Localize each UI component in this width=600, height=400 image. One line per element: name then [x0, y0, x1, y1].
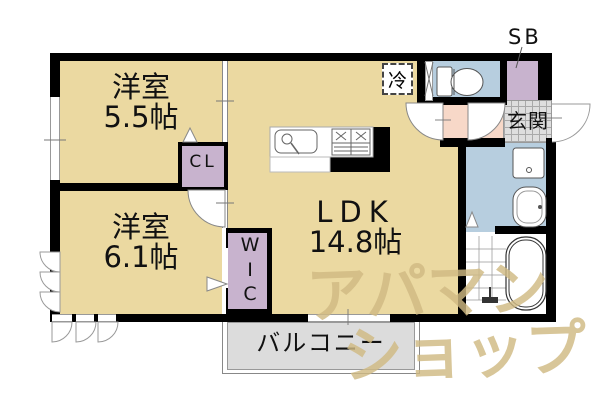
wall-right-lower: [546, 138, 556, 322]
window-bedroom-6-1-bottom-1: [52, 314, 72, 322]
wall-toilet-shoebox: [500, 61, 507, 97]
wall-top: [50, 53, 552, 61]
wall-kitchen-vertical: [373, 127, 390, 157]
partition-bedroom-ldk: [222, 61, 228, 142]
window-swing-bottom-3: [98, 322, 118, 342]
floor-plan: 洋室 5.5帖 洋室 6.1帖 LDK 14.8帖 CL W I C バルコニー…: [0, 0, 600, 400]
wall-washroom-bathroom: [495, 226, 546, 234]
label-closet: CL: [180, 154, 226, 172]
label-wic: W I C: [228, 233, 272, 307]
label-shoe-box: SB: [508, 26, 558, 48]
window-bedroom-6-1-left-1: [50, 252, 60, 270]
door-arc-entrance: [552, 104, 590, 142]
label-ldk: LDK 14.8帖: [258, 197, 453, 258]
window-swing-bottom-1: [52, 322, 72, 342]
bathroom: [466, 232, 546, 314]
wall-toilet-left: [417, 61, 425, 101]
window-bedroom-6-1-left-3: [50, 292, 60, 310]
window-bedroom-6-1-bottom-3: [98, 314, 116, 322]
room-size: 6.1帖: [60, 242, 222, 272]
hallway: [440, 100, 503, 143]
window-bedroom-5-5: [50, 97, 60, 180]
label-entrance: 玄関: [504, 111, 552, 132]
wall-bottom: [50, 314, 556, 322]
refrigerator-box: 冷: [382, 63, 413, 95]
room-name: LDK: [258, 197, 453, 227]
window-bedroom-6-1-bottom-2: [76, 314, 94, 322]
room-size: 5.5帖: [60, 102, 222, 132]
washroom: [466, 143, 546, 232]
room-size: 14.8帖: [258, 227, 453, 257]
wall-ldk-right: [458, 143, 466, 314]
shoe-box: [507, 61, 538, 100]
wall-kitchen-horizontal: [330, 157, 390, 172]
label-refrigerator: 冷: [388, 66, 407, 93]
wall-right-upper: [538, 53, 552, 100]
room-toilet: [433, 61, 500, 97]
pipe-space: [425, 61, 433, 101]
label-bedroom-6-1: 洋室 6.1帖: [60, 212, 222, 273]
window-bedroom-6-1-left-2: [50, 272, 60, 290]
window-balcony-sliding: [308, 314, 390, 322]
wall-between-bedrooms: [50, 183, 178, 191]
wall-hall-bottom: [440, 138, 505, 147]
window-swing-bottom-2: [76, 322, 96, 342]
partition-below-closet: [222, 190, 228, 228]
label-balcony: バルコニー: [227, 331, 415, 356]
room-name: 洋室: [60, 72, 222, 102]
room-name: 洋室: [60, 212, 222, 242]
label-bedroom-5-5: 洋室 5.5帖: [60, 72, 222, 133]
